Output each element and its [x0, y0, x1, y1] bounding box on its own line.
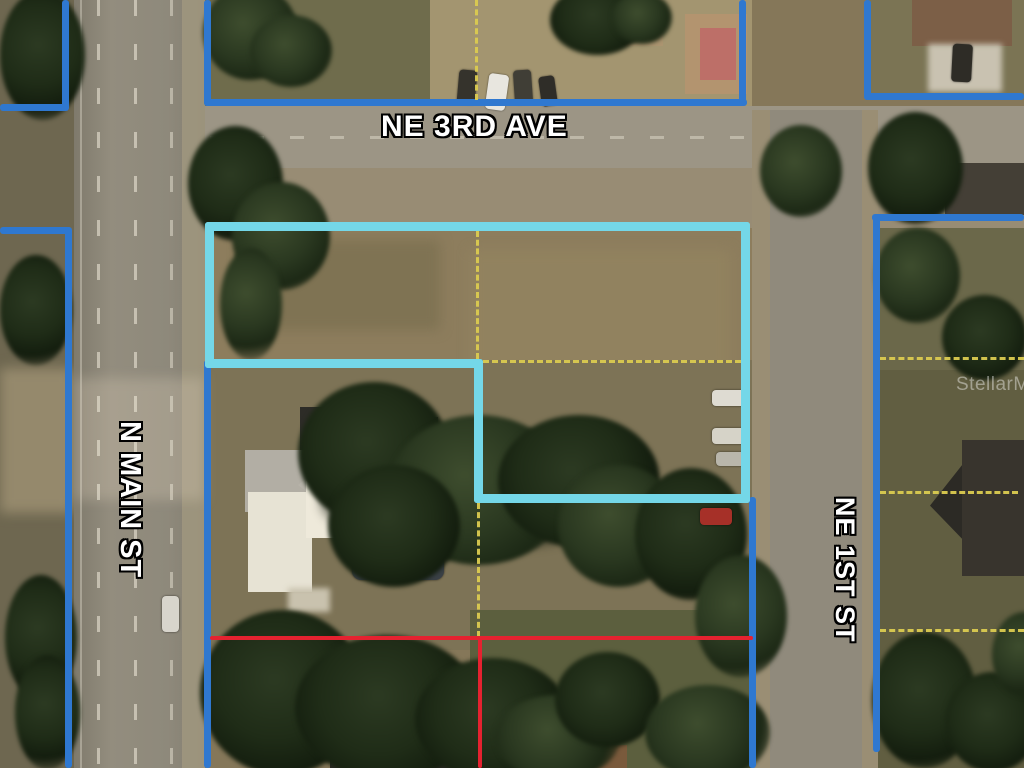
lot-split-line-red: [478, 636, 482, 768]
interior-lot-line-yellow: [483, 360, 741, 363]
subject-boundary-cyan: [474, 359, 483, 503]
parcel-line-blue: [204, 0, 211, 104]
interior-lot-line-yellow: [880, 491, 1018, 494]
interior-lot-line-yellow: [880, 629, 1024, 632]
edge-line: [80, 0, 82, 768]
interior-lot-line-yellow: [475, 0, 478, 100]
subject-house-left-wall: [248, 492, 312, 592]
interior-lot-line-yellow: [880, 357, 1024, 360]
aerial-parcel-map: NE 3RD AVE N MAIN ST NE 1ST ST StellarML…: [0, 0, 1024, 768]
street-label-ne-3rd-ave: NE 3RD AVE: [381, 110, 568, 144]
interior-lot-line-yellow: [476, 231, 479, 359]
parcel-line-blue: [204, 99, 747, 106]
street-label-ne-1st-st: NE 1ST ST: [829, 497, 860, 643]
subject-boundary-cyan: [741, 222, 750, 503]
tree-canopy: [0, 255, 72, 365]
car: [951, 44, 973, 83]
building-right-house: [962, 440, 1024, 576]
parcel-line-blue: [0, 227, 71, 234]
parcel-line-blue: [0, 104, 69, 111]
lane-line: [170, 0, 173, 768]
subject-boundary-cyan: [474, 494, 750, 503]
parcel-line-blue: [62, 0, 69, 110]
tree-canopy: [760, 125, 842, 217]
parcel-line-blue: [65, 227, 72, 768]
tree-canopy: [942, 295, 1024, 380]
interior-lot-line-yellow: [477, 503, 480, 637]
building-pink-roof: [700, 28, 736, 80]
street-label-n-main-st: N MAIN ST: [113, 421, 146, 578]
subject-boundary-cyan: [205, 359, 483, 368]
lane-line: [134, 0, 137, 768]
tree-canopy: [250, 15, 332, 87]
lane-line: [97, 0, 100, 768]
car-red: [700, 508, 732, 525]
parcel-line-blue: [873, 214, 880, 752]
parcel-line-blue: [864, 93, 1024, 100]
parcel-line-blue: [204, 360, 211, 768]
car: [162, 596, 179, 632]
subject-boundary-cyan: [205, 222, 750, 231]
parcel-line-blue: [749, 497, 756, 768]
tree-canopy: [695, 555, 787, 677]
subject-house-porch: [288, 588, 330, 612]
tree-canopy: [220, 248, 282, 360]
building-top-right: [912, 0, 1012, 46]
subject-boundary-cyan: [205, 222, 214, 368]
tree-canopy: [868, 112, 963, 224]
parcel-line-blue: [872, 214, 1024, 221]
parcel-line-blue: [739, 0, 746, 104]
mls-watermark: StellarMLS: [956, 374, 1024, 396]
tree-canopy: [875, 228, 960, 323]
terrain-west-light-patch: [0, 368, 74, 513]
tree-canopy: [328, 465, 460, 587]
parcel-line-blue: [864, 0, 871, 99]
